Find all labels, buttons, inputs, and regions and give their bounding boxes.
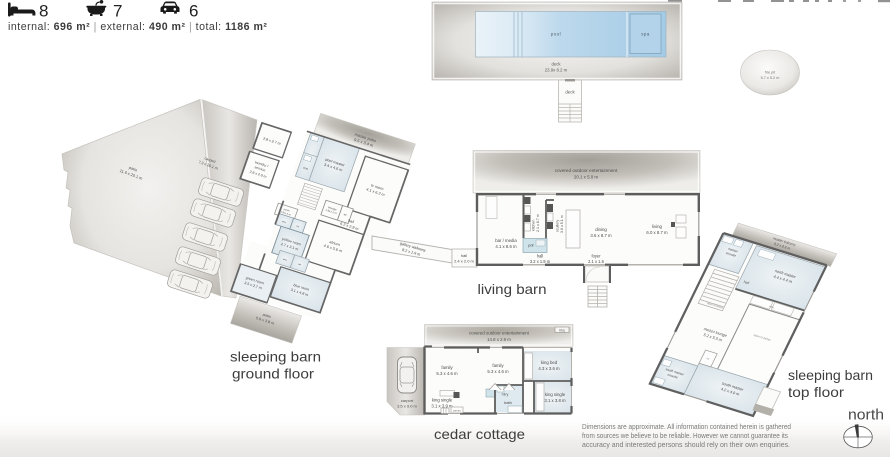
svg-text:top floor: top floor <box>788 385 844 400</box>
svg-text:2.1 x 8.7 m: 2.1 x 8.7 m <box>536 214 540 232</box>
svg-text:north: north <box>848 408 884 424</box>
svg-text:2.1 x 1.6: 2.1 x 1.6 <box>588 259 604 264</box>
svg-text:3.6 x 8.7 m: 3.6 x 8.7 m <box>590 233 612 238</box>
svg-text:family: family <box>441 365 453 370</box>
svg-text:sleeping barn: sleeping barn <box>230 350 321 365</box>
svg-text:covered outdoor entertainment: covered outdoor entertainment <box>469 331 530 336</box>
svg-text:3.2 x 1.9 m: 3.2 x 1.9 m <box>530 259 551 264</box>
svg-text:6: 6 <box>189 2 198 21</box>
svg-text:4.1 x 8.6 m: 4.1 x 8.6 m <box>495 244 517 249</box>
svg-text:internal: 696 m² | external:: internal: 696 m² | external: 490 m² | to… <box>8 21 267 33</box>
svg-text:pdr: pdr <box>528 243 534 248</box>
svg-text:kitchen: kitchen <box>532 220 536 231</box>
svg-text:6.0 x 8.7 m: 6.0 x 8.7 m <box>646 230 668 235</box>
svg-text:5.7 x 5.2 m: 5.7 x 5.2 m <box>761 76 780 80</box>
svg-text:4.3 x 3.6 m: 4.3 x 3.6 m <box>538 366 560 371</box>
svg-text:7: 7 <box>113 2 122 21</box>
svg-text:carport: carport <box>401 398 414 403</box>
svg-text:23.9x 8.2 m: 23.9x 8.2 m <box>545 68 568 73</box>
svg-text:dining: dining <box>595 227 607 232</box>
svg-text:bbq: bbq <box>559 328 565 332</box>
svg-text:bar / media: bar / media <box>495 238 517 243</box>
svg-text:2.4 x 2.0 m: 2.4 x 2.0 m <box>454 259 474 264</box>
svg-text:king bed: king bed <box>541 360 558 365</box>
svg-text:ground floor: ground floor <box>232 367 314 382</box>
svg-text:bath: bath <box>504 400 512 405</box>
svg-text:l'dry: l'dry <box>502 393 509 397</box>
svg-text:living barn: living barn <box>478 282 547 297</box>
svg-text:3.1 x 3.8 m: 3.1 x 3.8 m <box>544 398 566 403</box>
svg-text:8: 8 <box>39 2 48 21</box>
svg-text:sleeping barn: sleeping barn <box>788 368 873 383</box>
svg-text:5.3 x 4.6 m: 5.3 x 4.6 m <box>487 369 509 374</box>
svg-text:Dimensions are approximate. A: Dimensions are approximate. All informat… <box>582 422 791 431</box>
svg-text:3.6 x 5.1 m: 3.6 x 5.1 m <box>560 215 564 233</box>
svg-text:pantry: pantry <box>453 409 461 413</box>
svg-text:scullery: scullery <box>556 220 560 232</box>
svg-text:from sources we believe to be: from sources we believe to be reliable. … <box>582 431 788 440</box>
svg-text:king single: king single <box>545 392 566 397</box>
svg-text:3.5 x 9.0 m: 3.5 x 9.0 m <box>397 404 417 409</box>
svg-text:5.3 x 4.6 m: 5.3 x 4.6 m <box>436 371 458 376</box>
svg-text:cedar cottage: cedar cottage <box>434 427 525 442</box>
svg-text:living: living <box>652 224 662 229</box>
svg-text:14.8 x 2.9 m: 14.8 x 2.9 m <box>487 337 511 342</box>
svg-text:fire pit: fire pit <box>765 71 776 75</box>
svg-text:deck: deck <box>551 62 561 67</box>
svg-text:deck: deck <box>565 90 575 95</box>
svg-text:family: family <box>492 363 504 368</box>
svg-text:covered outdoor entertainment: covered outdoor entertainment <box>555 168 618 173</box>
svg-text:20.1 x 5.0 m: 20.1 x 5.0 m <box>574 175 599 180</box>
svg-text:spa: spa <box>641 32 650 37</box>
svg-text:foyer: foyer <box>591 254 601 259</box>
svg-text:pool: pool <box>551 32 561 37</box>
svg-text:hall: hall <box>461 253 467 258</box>
svg-text:king single: king single <box>432 398 453 403</box>
svg-text:hall: hall <box>537 254 543 259</box>
svg-text:accuracy and interested person: accuracy and interested persons should r… <box>582 440 790 449</box>
